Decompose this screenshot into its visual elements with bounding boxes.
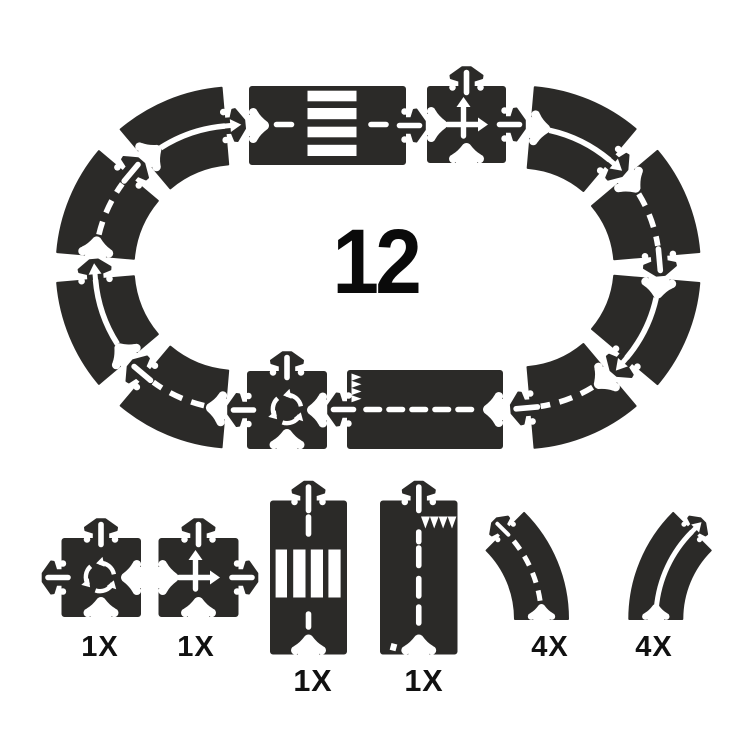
svg-text:12: 12 [332, 209, 419, 313]
svg-text:1X: 1X [177, 631, 214, 663]
svg-text:4X: 4X [531, 631, 568, 663]
svg-text:1X: 1X [404, 664, 443, 698]
svg-text:1X: 1X [293, 664, 332, 698]
svg-text:4X: 4X [635, 631, 672, 663]
svg-text:1X: 1X [81, 631, 118, 663]
